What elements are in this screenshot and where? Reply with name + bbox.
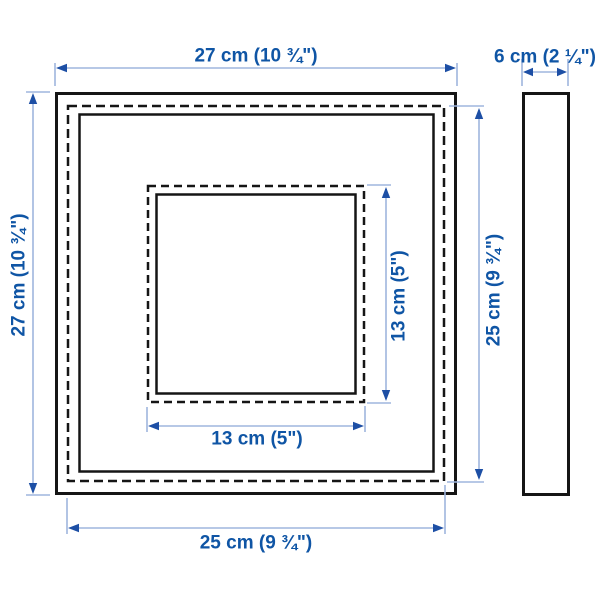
arrowhead-up-icon [475, 108, 483, 119]
side-profile-outline [524, 94, 569, 495]
front-width-label: 27 cm (10 ¾") [194, 47, 317, 66]
arrowhead-left-icon [56, 64, 67, 72]
arrowhead-left-icon [148, 422, 159, 430]
dimension-front-height [26, 92, 50, 495]
arrowhead-right-icon [557, 68, 567, 76]
arrowhead-down-icon [29, 483, 37, 494]
opening-height-label: 13 cm (5") [390, 250, 409, 341]
frame-dimension-diagram: 27 cm (10 ¾") 6 cm (2 ¼") 27 cm (10 ¾") … [0, 0, 600, 600]
opening-dashed-outline [148, 186, 364, 402]
arrowhead-left-icon [68, 524, 79, 532]
arrowhead-right-icon [445, 64, 456, 72]
side-depth-label: 6 cm (2 ¼") [494, 48, 596, 67]
dimension-opening-height [367, 185, 391, 403]
arrowhead-up-icon [382, 187, 390, 198]
back-width-label: 25 cm (9 ¾") [200, 534, 313, 553]
arrowhead-right-icon [353, 422, 364, 430]
arrowhead-left-icon [523, 68, 533, 76]
arrowhead-down-icon [382, 390, 390, 401]
opening-edge [157, 195, 356, 394]
arrowhead-up-icon [29, 93, 37, 104]
arrowhead-down-icon [475, 469, 483, 480]
side-view [524, 94, 569, 495]
front-height-label: 27 cm (10 ¾") [10, 213, 29, 336]
front-inner-edge [80, 115, 434, 472]
dimension-back-height [447, 106, 484, 482]
back-height-label: 25 cm (9 ¾") [485, 234, 504, 347]
dimension-diagram-svg [0, 0, 600, 600]
opening-width-label: 13 cm (5") [211, 430, 302, 449]
arrowhead-right-icon [433, 524, 444, 532]
